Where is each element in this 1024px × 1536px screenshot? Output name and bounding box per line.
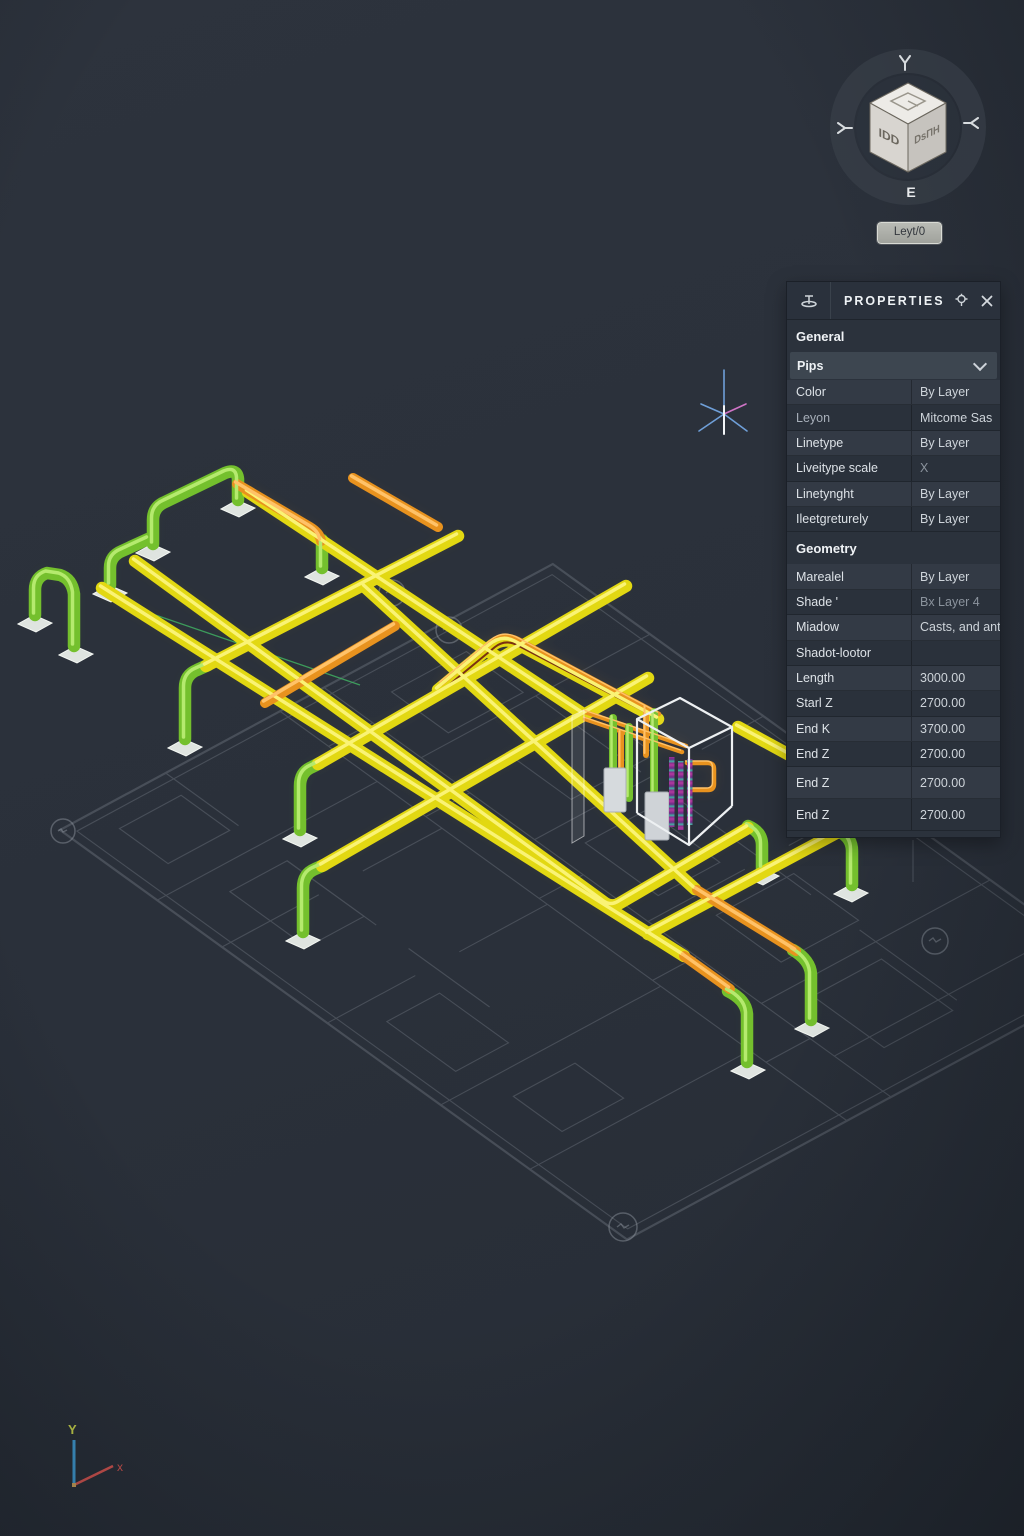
property-value[interactable]: 2700.00: [911, 691, 1000, 715]
equipment-fitting: [604, 768, 626, 812]
section-geometry[interactable]: Geometry: [787, 532, 1000, 564]
section-general[interactable]: General: [787, 320, 1000, 352]
property-row-transparency[interactable]: Ileetgreturely By Layer: [787, 507, 1000, 532]
chevron-down-icon[interactable]: [973, 356, 987, 370]
ucs-y-label: Y: [68, 1422, 77, 1437]
viewcube-south-label[interactable]: E: [906, 184, 915, 200]
property-value[interactable]: Mitcome Sas: [911, 405, 1000, 429]
property-value[interactable]: By Layer: [911, 380, 1000, 404]
property-value[interactable]: By Layer: [911, 482, 1000, 506]
ucs-axis-icon: Y x: [68, 1422, 123, 1487]
property-label: End K: [787, 722, 911, 736]
property-label: Liveitype scale: [787, 461, 911, 475]
property-label: Length: [787, 671, 911, 685]
property-row-end-z[interactable]: End Z 2700.00: [787, 742, 1000, 767]
property-label: Shade ': [787, 595, 911, 609]
property-label: Linetype: [787, 436, 911, 450]
viewcube[interactable]: IDD DsПH E: [813, 18, 1003, 218]
property-value[interactable]: By Layer: [911, 431, 1000, 455]
property-row-start-z[interactable]: Starl Z 2700.00: [787, 691, 1000, 716]
property-row-color[interactable]: Color By Layer: [787, 380, 1000, 405]
property-value[interactable]: 3700.00: [911, 717, 1000, 741]
properties-panel: PROPERTIES General Pips Color By Layer: [786, 281, 1001, 838]
property-value[interactable]: Bx Layer 4: [911, 590, 1000, 614]
property-label: End Z: [787, 747, 911, 761]
layout-button[interactable]: Leyt/0: [877, 222, 942, 244]
property-label: Shadot-lootor: [787, 646, 911, 660]
panel-settings-icon[interactable]: [948, 282, 974, 319]
ucs-x-label: x: [117, 1460, 123, 1474]
properties-title: PROPERTIES: [831, 294, 948, 308]
property-value[interactable]: Casts, and ant: [911, 615, 1000, 639]
property-row-layer[interactable]: Leyon Mitcome Sas: [787, 405, 1000, 430]
property-row-linetype-scale[interactable]: Liveitype scale X: [787, 456, 1000, 481]
property-label: Starl Z: [787, 696, 911, 710]
property-value[interactable]: 3000.00: [911, 666, 1000, 690]
property-value[interactable]: By Layer: [911, 507, 1000, 531]
property-label: Linetynght: [787, 487, 911, 501]
object-selector[interactable]: Pips: [790, 352, 997, 379]
property-value[interactable]: 2700.00: [911, 767, 1000, 798]
property-label: Miadow: [787, 620, 911, 634]
property-label: Color: [787, 385, 911, 399]
striped-column: [669, 757, 675, 827]
property-row-linetype[interactable]: Linetype By Layer: [787, 431, 1000, 456]
property-value[interactable]: By Layer: [911, 564, 1000, 588]
property-label: End Z: [787, 808, 911, 822]
property-row-end-z[interactable]: End Z 2700.00: [787, 799, 1000, 831]
equipment-fitting: [645, 792, 669, 840]
panel-pin-icon[interactable]: [787, 282, 831, 319]
crosshair-cursor: [699, 370, 747, 434]
property-row-shadow[interactable]: Miadow Casts, and ant: [787, 615, 1000, 640]
property-value[interactable]: [911, 641, 1000, 665]
property-row-shade[interactable]: Shade ' Bx Layer 4: [787, 590, 1000, 615]
property-label: End Z: [787, 776, 911, 790]
property-row-material[interactable]: Marealel By Layer: [787, 564, 1000, 589]
property-row-end-z[interactable]: End Z 2700.00: [787, 767, 1000, 799]
object-selector-label: Pips: [790, 359, 975, 373]
glass-panel: [572, 710, 584, 843]
property-row-lineweight[interactable]: Linetynght By Layer: [787, 482, 1000, 507]
property-row-end-x[interactable]: End K 3700.00: [787, 717, 1000, 742]
property-value[interactable]: X: [911, 456, 1000, 480]
property-label: Ileetgreturely: [787, 512, 911, 526]
property-row-length[interactable]: Length 3000.00: [787, 666, 1000, 691]
property-label: Marealel: [787, 570, 911, 584]
properties-header: PROPERTIES: [787, 282, 1000, 320]
property-label: Leyon: [787, 411, 911, 425]
property-row-shadow-color[interactable]: Shadot-lootor: [787, 641, 1000, 666]
application-window: Y x IDD DsПH E Ley: [0, 0, 1024, 1536]
property-value[interactable]: 2700.00: [911, 742, 1000, 766]
property-value[interactable]: 2700.00: [911, 799, 1000, 830]
panel-close-icon[interactable]: [974, 282, 1000, 319]
striped-column: [678, 761, 684, 830]
